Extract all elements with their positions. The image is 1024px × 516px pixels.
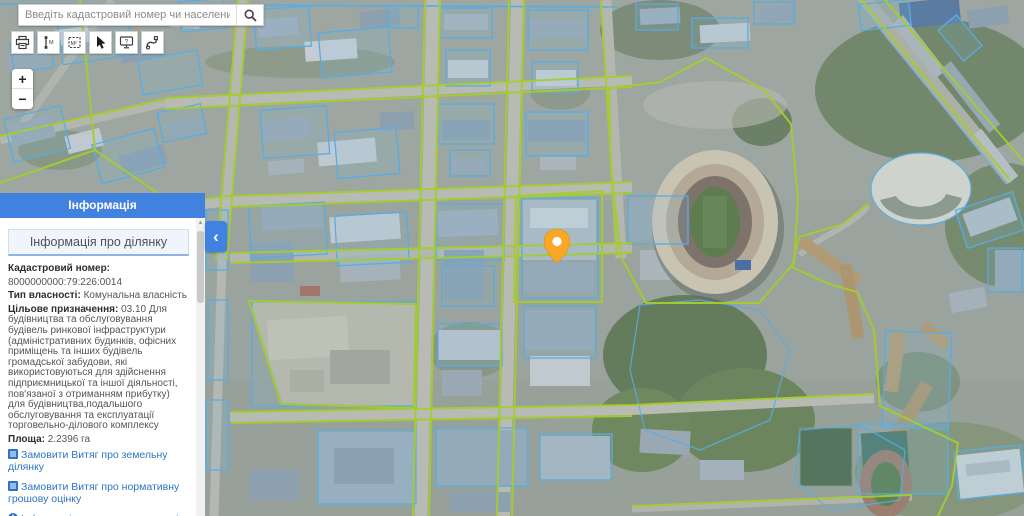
field-label: Кадастровий номер: bbox=[8, 263, 110, 274]
scrollbar-thumb[interactable] bbox=[197, 231, 204, 303]
link-text: Замовити Витяг про нормативну грошову оц… bbox=[8, 481, 179, 506]
print-button[interactable] bbox=[11, 31, 34, 54]
cadastral-number-value: 8000000000:79:226:0014 bbox=[8, 278, 189, 289]
info-panel-header: Інформація bbox=[0, 193, 205, 218]
info-panel: Інформація Інформація про ділянку Кадаст… bbox=[0, 193, 205, 516]
panel-collapse-button[interactable]: ‹ bbox=[205, 221, 227, 252]
field-value: Комунальна власність bbox=[84, 290, 187, 301]
cursor-icon bbox=[93, 35, 108, 50]
cadastral-number-label: Кадастровий номер: bbox=[8, 264, 189, 275]
search-bar bbox=[18, 4, 264, 26]
document-icon bbox=[8, 449, 18, 463]
zoom-out-button[interactable]: − bbox=[12, 89, 33, 109]
panel-scrollbar[interactable]: ▲ bbox=[196, 218, 205, 516]
ruler-icon: M bbox=[41, 35, 56, 50]
svg-text:M: M bbox=[49, 40, 54, 46]
document-icon bbox=[8, 481, 18, 495]
info-panel-body: Інформація про ділянку Кадастровий номер… bbox=[0, 218, 205, 516]
search-button[interactable] bbox=[236, 5, 263, 25]
measure-distance-button[interactable]: M bbox=[37, 31, 60, 54]
field-value: 2.2396 га bbox=[48, 434, 90, 445]
map-marker-icon[interactable] bbox=[544, 229, 570, 263]
monitor-question-icon: ? bbox=[119, 35, 134, 50]
measure-area-button[interactable]: M² bbox=[63, 31, 86, 54]
ownership-field: Тип власності: Комунальна власність bbox=[8, 291, 189, 302]
help-button[interactable]: ? bbox=[115, 31, 138, 54]
scroll-up-arrow[interactable]: ▲ bbox=[196, 218, 205, 228]
search-input[interactable] bbox=[19, 5, 236, 25]
route-button[interactable] bbox=[141, 31, 164, 54]
field-label: Площа: bbox=[8, 434, 45, 445]
route-icon bbox=[145, 35, 160, 50]
map-toolbar: M M² ? bbox=[11, 31, 164, 54]
search-icon bbox=[244, 9, 257, 22]
area-m2-icon: M² bbox=[67, 35, 82, 50]
order-extract-valuation-link[interactable]: Замовити Витяг про нормативну грошову оц… bbox=[8, 481, 189, 506]
zoom-control: + − bbox=[12, 69, 33, 109]
field-value: 03.10 Для будівництва та обслуговування … bbox=[8, 304, 178, 432]
svg-text:?: ? bbox=[125, 38, 129, 45]
ownership-rights-info-link[interactable]: Інформація про право власності та речові… bbox=[8, 513, 189, 516]
link-text: Замовити Витяг про земельну ділянку bbox=[8, 449, 168, 474]
svg-text:M²: M² bbox=[71, 41, 78, 47]
purpose-field: Цільове призначення: 03.10 Для будівницт… bbox=[8, 305, 189, 432]
stadium bbox=[643, 81, 787, 302]
field-label: Тип власності: bbox=[8, 290, 81, 301]
area-field: Площа: 2.2396 га bbox=[8, 435, 189, 446]
cadastral-map-app: M M² ? bbox=[0, 0, 1024, 516]
order-extract-parcel-link[interactable]: Замовити Витяг про земельну ділянку bbox=[8, 449, 189, 474]
parcel-info-section-title[interactable]: Інформація про ділянку bbox=[8, 229, 189, 256]
printer-icon bbox=[15, 35, 30, 50]
zoom-in-button[interactable]: + bbox=[12, 69, 33, 89]
select-cursor-button[interactable] bbox=[89, 31, 112, 54]
info-icon bbox=[8, 513, 18, 516]
link-text: Інформація про право власності та речові… bbox=[8, 513, 179, 516]
